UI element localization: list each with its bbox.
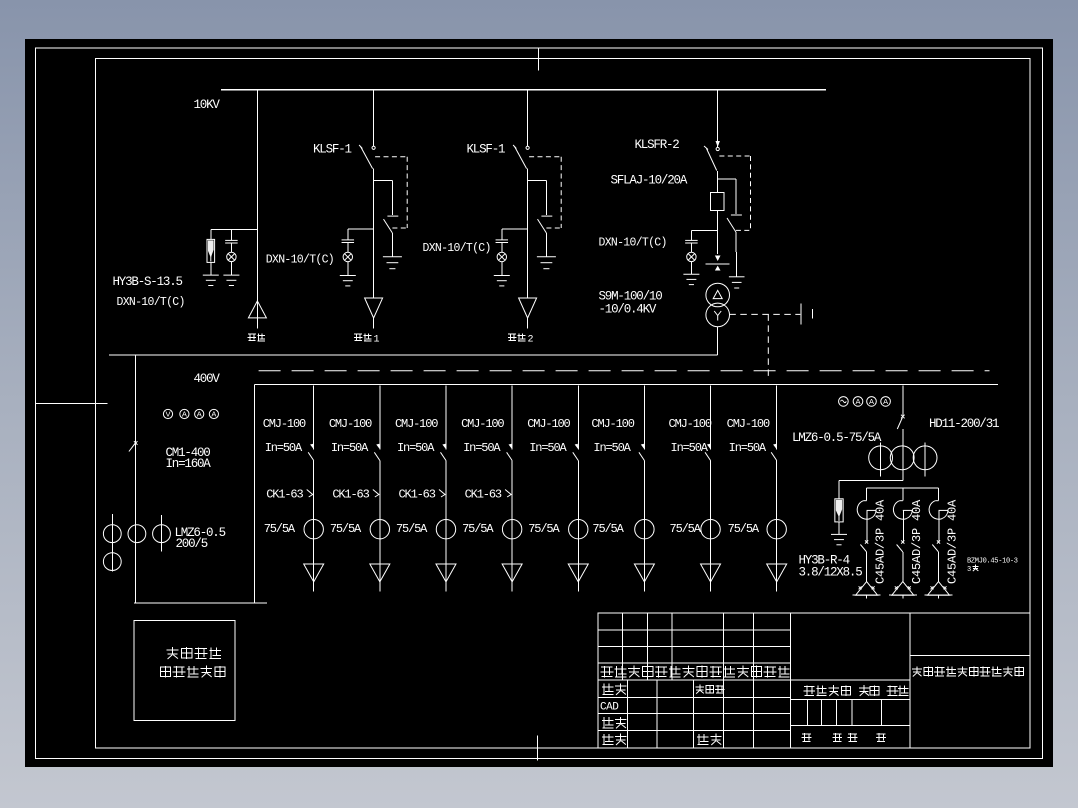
svg-text:CMJ-100: CMJ-100 <box>527 417 570 431</box>
svg-text:3.8/12X8.5: 3.8/12X8.5 <box>799 566 863 580</box>
svg-text:HD11-200/31: HD11-200/31 <box>929 417 999 431</box>
svg-text:KLSF-1: KLSF-1 <box>467 143 506 157</box>
svg-text:DXN-10/T(C): DXN-10/T(C) <box>266 254 334 267</box>
svg-text:A: A <box>869 397 874 406</box>
svg-text:75/5A: 75/5A <box>592 522 624 536</box>
svg-text:200/5: 200/5 <box>176 537 208 551</box>
svg-text:1: 1 <box>374 335 380 346</box>
svg-text:C45AD/3P 40A: C45AD/3P 40A <box>910 499 924 584</box>
svg-text:V: V <box>165 410 170 419</box>
svg-text:75/5A: 75/5A <box>670 522 702 536</box>
svg-text:-10/0.4KV: -10/0.4KV <box>599 303 657 317</box>
svg-text:DXN-10/T(C): DXN-10/T(C) <box>117 296 185 309</box>
svg-text:In=50A: In=50A <box>265 441 303 455</box>
svg-text:10KV: 10KV <box>194 98 221 112</box>
svg-text:A: A <box>855 397 860 406</box>
svg-text:HY3B-S-13.5: HY3B-S-13.5 <box>113 275 183 289</box>
svg-text:CMJ-100: CMJ-100 <box>329 417 372 431</box>
svg-text:C45AD/3P 40A: C45AD/3P 40A <box>946 499 960 584</box>
svg-text:In=50A: In=50A <box>671 441 709 455</box>
svg-text:75/5A: 75/5A <box>462 522 494 536</box>
svg-text:In=50A: In=50A <box>593 441 631 455</box>
svg-text:CK1-63: CK1-63 <box>398 488 435 502</box>
svg-text:DXN-10/T(C): DXN-10/T(C) <box>599 237 667 250</box>
svg-text:A: A <box>182 410 187 419</box>
svg-text:75/5A: 75/5A <box>528 522 560 536</box>
svg-text:CK1-63: CK1-63 <box>465 488 502 502</box>
svg-text:75/5A: 75/5A <box>330 522 362 536</box>
svg-text:In=50A: In=50A <box>529 441 567 455</box>
svg-text:CMJ-100: CMJ-100 <box>727 417 770 431</box>
svg-text:KLSF-1: KLSF-1 <box>313 143 352 157</box>
svg-text:S9M-100/10: S9M-100/10 <box>599 290 663 304</box>
svg-text:KLSFR-2: KLSFR-2 <box>635 138 680 152</box>
svg-text:CK1-63: CK1-63 <box>332 488 369 502</box>
svg-text:75/5A: 75/5A <box>728 522 760 536</box>
svg-text:BZMJ0.45-10-3: BZMJ0.45-10-3 <box>967 558 1018 566</box>
svg-text:In=50A: In=50A <box>729 441 767 455</box>
svg-text:CMJ-100: CMJ-100 <box>395 417 438 431</box>
svg-text:SFLAJ-10/20A: SFLAJ-10/20A <box>611 174 688 188</box>
svg-text:CMJ-100: CMJ-100 <box>669 417 712 431</box>
svg-text:2: 2 <box>528 335 534 346</box>
svg-text:CMJ-100: CMJ-100 <box>263 417 306 431</box>
svg-text:C45AD/3P 40A: C45AD/3P 40A <box>874 499 888 584</box>
svg-text:DXN-10/T(C): DXN-10/T(C) <box>423 242 491 255</box>
svg-text:3: 3 <box>967 566 971 574</box>
svg-text:CK1-63: CK1-63 <box>266 488 303 502</box>
svg-text:CAD: CAD <box>600 702 619 714</box>
svg-text:CMJ-100: CMJ-100 <box>591 417 634 431</box>
svg-text:75/5A: 75/5A <box>396 522 428 536</box>
svg-text:75/5A: 75/5A <box>264 522 296 536</box>
svg-text:400V: 400V <box>194 372 221 386</box>
svg-text:In=50A: In=50A <box>397 441 435 455</box>
svg-text:LMZ6-0.5-75/5A: LMZ6-0.5-75/5A <box>792 431 882 445</box>
svg-text:In=50A: In=50A <box>463 441 501 455</box>
svg-text:In=160A: In=160A <box>166 457 212 471</box>
svg-text:A: A <box>197 410 202 419</box>
svg-text:In=50A: In=50A <box>331 441 369 455</box>
svg-text:A: A <box>211 410 216 419</box>
svg-text:CMJ-100: CMJ-100 <box>461 417 504 431</box>
svg-text:A: A <box>883 397 888 406</box>
